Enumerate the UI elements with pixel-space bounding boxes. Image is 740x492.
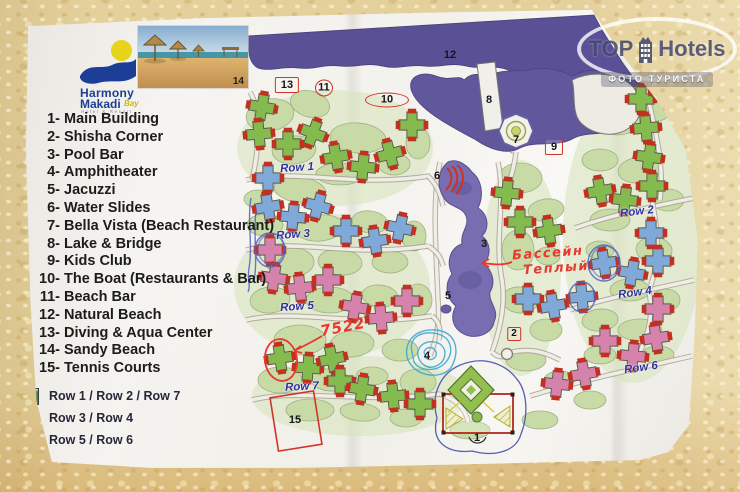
poi-number: 4- (30, 164, 60, 182)
map-marker-5: 5 (445, 290, 451, 302)
poi-list-item: 9-Kids Club (30, 253, 245, 271)
poi-number: 2- (30, 129, 60, 147)
poi-label: Jacuzzi (60, 182, 116, 200)
map-marker-4: 4 (424, 350, 430, 362)
poi-list-item: 8-Lake & Bridge (30, 236, 245, 254)
poi-label: Tennis Courts (60, 360, 160, 378)
poi-label: Bella Vista (Beach Restaurant) (60, 218, 274, 236)
bungalow-pink (539, 366, 575, 402)
poi-number: 3- (30, 147, 60, 165)
legend-label: Row 3 / Row 4 (49, 411, 133, 425)
poi-list-item: 13-Diving & Aqua Center (30, 325, 245, 343)
poi-label: Shisha Corner (60, 129, 163, 147)
swimming-pool (439, 161, 496, 337)
poi-label: The Boat (Restaurants & Bar) (60, 271, 266, 289)
map-marker-2: 2 (507, 327, 521, 341)
poi-number: 1- (30, 111, 60, 129)
beach-photo-art (138, 26, 248, 88)
poi-list-item: 11-Beach Bar (30, 289, 245, 307)
poi-list-item: 3-Pool Bar (30, 147, 245, 165)
poi-label: Main Building (60, 111, 159, 129)
poi-list-item: 15-Tennis Courts (30, 360, 245, 378)
poi-label: Kids Club (60, 253, 132, 271)
row-label-row-1: Row 1 (280, 161, 315, 175)
poi-list-item: 6-Water Slides (30, 200, 245, 218)
row-label-row-3: Row 3 (276, 228, 311, 242)
row-label-row-7: Row 7 (285, 380, 319, 394)
poi-label: Diving & Aqua Center (60, 325, 213, 343)
poi-label: Lake & Bridge (60, 236, 162, 254)
legend-label: Row 1 / Row 2 / Row 7 (49, 389, 180, 403)
map-marker-10: 10 (365, 93, 409, 108)
poi-number: 12- (30, 307, 60, 325)
legend-label: Row 5 / Row 6 (49, 433, 133, 447)
poi-label: Pool Bar (60, 147, 124, 165)
map-marker-9: 9 (545, 139, 563, 155)
poi-list-item: 14-Sandy Beach (30, 342, 245, 360)
poi-number: 14- (30, 342, 60, 360)
poi-list: 1-Main Building2-Shisha Corner3-Pool Bar… (30, 111, 245, 378)
map-marker-3: 3 (481, 238, 487, 250)
poi-label: Water Slides (60, 200, 151, 218)
map-marker-12: 12 (444, 49, 456, 61)
legend-row: Row 1 / Row 2 / Row 7 (22, 385, 180, 407)
map-marker-6: 6 (434, 170, 440, 182)
map-marker-13: 13 (275, 77, 299, 93)
poi-label: Beach Bar (60, 289, 136, 307)
poi-list-item: 4-Amphitheater (30, 164, 245, 182)
map-marker-15: 15 (289, 414, 301, 426)
poi-number: 6- (30, 200, 60, 218)
poi-list-item: 7-Bella Vista (Beach Restaurant) (30, 218, 245, 236)
poi-list-item: 10-The Boat (Restaurants & Bar) (30, 271, 245, 289)
poi-number: 13- (30, 325, 60, 343)
map-marker-7: 7 (513, 134, 519, 146)
poi-list-item: 5-Jacuzzi (30, 182, 245, 200)
legend-row: Row 3 / Row 4 (22, 407, 180, 429)
row-label-row-5: Row 5 (280, 300, 315, 314)
photo-number-label: 14 (233, 76, 244, 87)
sandy-beach-photo: 14 (138, 26, 248, 88)
watermark-tagline: ФОТО ТУРИСТА (601, 72, 713, 87)
watermark-hotels-text: Hotels (658, 36, 725, 62)
poi-number: 7- (30, 218, 60, 236)
watermark-top-text: TOP (588, 36, 633, 62)
logo-script-word: Bay (124, 99, 139, 108)
poi-number: 9- (30, 253, 60, 271)
poi-number: 11- (30, 289, 60, 307)
tophotels-watermark: TOP Hotels ФОТО ТУРИСТА (573, 12, 739, 94)
poi-label: Natural Beach (60, 307, 162, 325)
poi-label: Sandy Beach (60, 342, 155, 360)
poi-list-item: 12-Natural Beach (30, 307, 245, 325)
poi-list-item: 1-Main Building (30, 111, 245, 129)
map-marker-8: 8 (486, 94, 492, 106)
poi-label: Amphitheater (60, 164, 157, 182)
poi-number: 8- (30, 236, 60, 254)
map-marker-11: 11 (315, 80, 333, 97)
map-marker-1: 1 (474, 432, 480, 444)
plaza-circle (502, 349, 513, 360)
jacuzzi (441, 305, 451, 313)
hotel-building-icon (636, 36, 655, 63)
poi-number: 5- (30, 182, 60, 200)
poi-number: 10- (30, 271, 60, 289)
poi-list-item: 2-Shisha Corner (30, 129, 245, 147)
logo-wave-icon (78, 54, 138, 88)
photographed-resort-map-scene: Harmony Makadi Bay Hotel & Resort (0, 0, 740, 492)
